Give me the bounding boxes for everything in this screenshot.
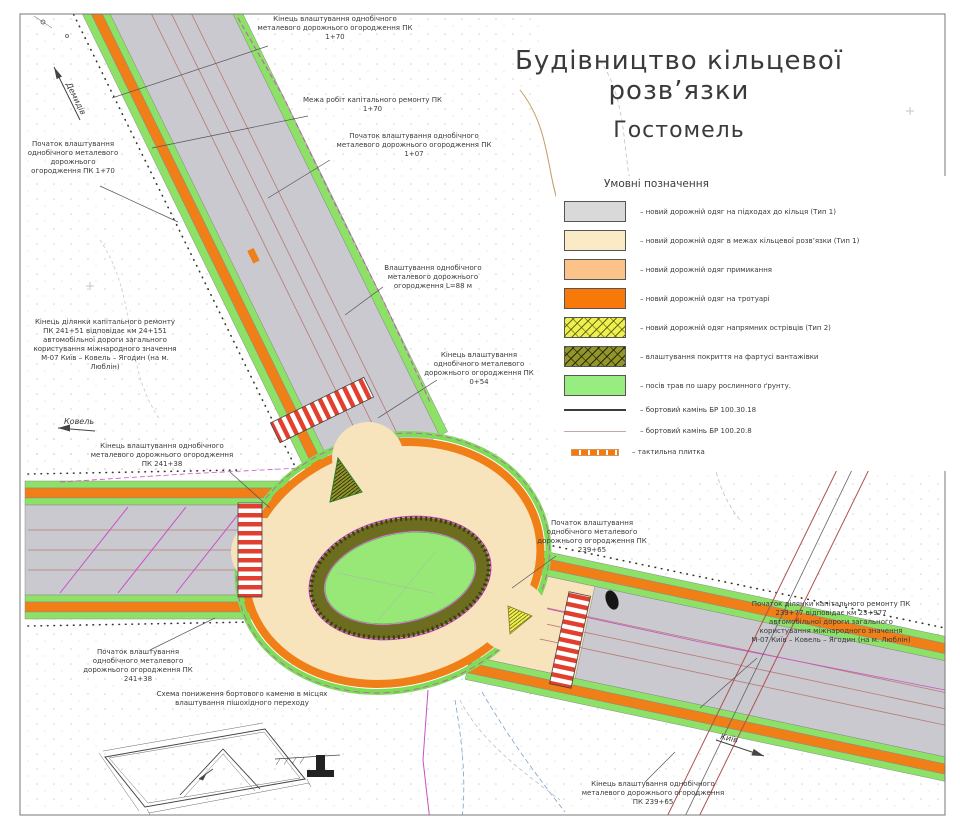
- callout-end-guardrail-pk1-70: Кінець влаштування однобічного металевог…: [255, 15, 415, 42]
- legend-label: – новий дорожній одяг напрямних острівці…: [640, 324, 831, 332]
- legend-swatch-hatch-yellow: [564, 317, 626, 338]
- callout-start-guardrail-pk1-70: Початок влаштування однобічного металево…: [25, 140, 121, 176]
- legend-item-curb-br100208: – бортовий камінь БР 100.20.8: [556, 425, 948, 437]
- legend-item-curb-br1003018: – бортовий камінь БР 100.30.18: [556, 404, 948, 416]
- callout-guardrail-l88: Влаштування однобічного металевого дорож…: [383, 264, 483, 291]
- legend-item-approach-pavement: – новий дорожній одяг на підходах до кіл…: [556, 201, 948, 222]
- legend-swatch-tactile: [572, 450, 618, 455]
- legend-swatch-line-dark: [564, 409, 626, 411]
- legend-label: – новий дорожній одяг примикання: [640, 266, 772, 274]
- legend-swatch-orange: [564, 288, 626, 309]
- callout-end-guardrail-pk239-65: Кінець влаштування однобічного металевог…: [577, 780, 729, 807]
- drawing-sheet: Демидів Ковель Київ: [0, 0, 960, 835]
- title-line2: Гостомель: [440, 118, 918, 143]
- legend-label: – бортовий камінь БР 100.30.18: [640, 406, 756, 414]
- legend-label: – новий дорожній одяг на підходах до кіл…: [640, 208, 836, 216]
- callout-end-guardrail-pk241-38: Кінець влаштування однобічного металевог…: [88, 442, 236, 469]
- legend-label: – влаштування покриття на фартусі вантаж…: [640, 353, 818, 361]
- legend-item-sidewalk-pavement: – новий дорожній одяг на тротуарі: [556, 288, 948, 309]
- legend-swatch-peach: [564, 259, 626, 280]
- legend-label: – тактильна плитка: [632, 448, 705, 456]
- callout-start-guardrail-pk241-38: Початок влаштування однобічного металево…: [76, 648, 200, 684]
- legend-item-tactile-tile: – тактильна плитка: [556, 446, 948, 458]
- legend-swatch-gray: [564, 201, 626, 222]
- legend-label: – новий дорожній одяг на тротуарі: [640, 295, 770, 303]
- legend-heading: Умовні позначення: [604, 178, 948, 190]
- legend-swatch-green: [564, 375, 626, 396]
- legend-item-grass-seeding: – посів трав по шару рослинного ґрунту.: [556, 375, 948, 396]
- svg-text:Ковель: Ковель: [64, 417, 94, 426]
- legend-item-roundabout-pavement: – новий дорожній одяг в межах кільцевої …: [556, 230, 948, 251]
- legend: Умовні позначення – новий дорожній одяг …: [556, 176, 948, 471]
- callout-start-section-pk239-77: Початок ділянки капітального ремонту ПК …: [750, 600, 912, 645]
- callout-work-limit-pk1-70: Межа робіт капітального ремонту ПК 1+70: [300, 96, 445, 114]
- callout-start-guardrail-pk239-65: Початок влаштування однобічного металево…: [528, 519, 656, 555]
- legend-item-junction-pavement: – новий дорожній одяг примикання: [556, 259, 948, 280]
- legend-swatch-hatch-olive: [564, 346, 626, 367]
- legend-label: – посів трав по шару рослинного ґрунту.: [640, 382, 791, 390]
- legend-swatch-cream: [564, 230, 626, 251]
- callout-end-guardrail-pk0-54: Кінець влаштування однобічного металевог…: [420, 351, 538, 387]
- legend-label: – новий дорожній одяг в межах кільцевої …: [640, 237, 859, 245]
- callout-end-section-pk241-51: Кінець ділянки капітального ремонту ПК 2…: [30, 318, 180, 372]
- callout-curb-scheme-caption: Схема пониження бортового каменю в місця…: [148, 690, 336, 708]
- legend-item-island-pavement: – новий дорожній одяг напрямних острівці…: [556, 317, 948, 338]
- drawing-title: Будівництво кільцевої розв’язки Гостомел…: [440, 46, 918, 143]
- legend-item-truck-apron: – влаштування покриття на фартусі вантаж…: [556, 346, 948, 367]
- legend-swatch-line-light: [564, 431, 626, 432]
- legend-label: – бортовий камінь БР 100.20.8: [640, 427, 752, 435]
- title-line1: Будівництво кільцевої розв’язки: [440, 46, 918, 106]
- callout-start-guardrail-pk1-07: Початок влаштування однобічного металево…: [328, 132, 500, 159]
